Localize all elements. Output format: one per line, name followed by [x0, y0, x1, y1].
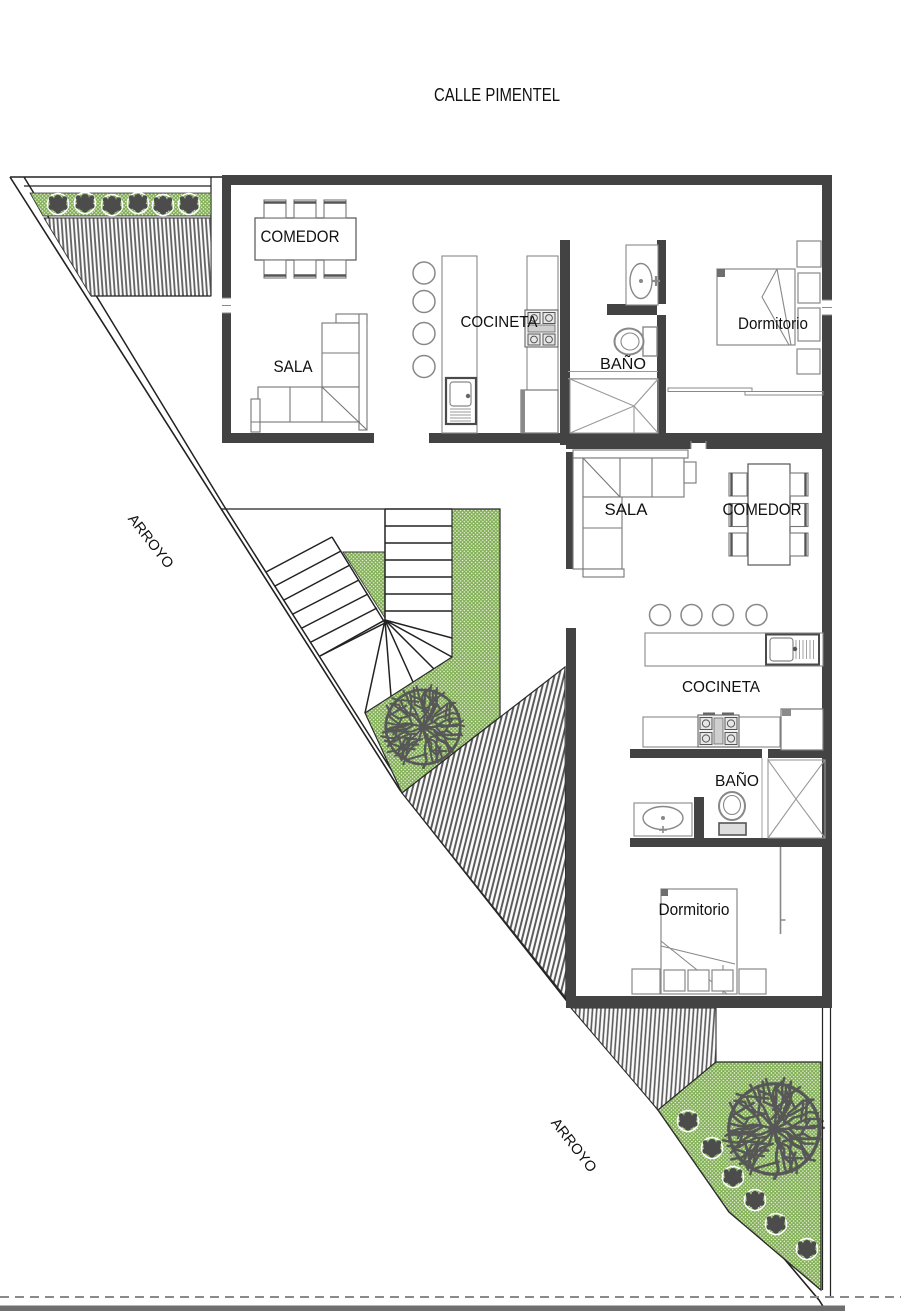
svg-text:CALLE PIMENTEL: CALLE PIMENTEL [434, 85, 560, 105]
svg-text:SALA: SALA [605, 500, 649, 519]
svg-text:COCINETA: COCINETA [682, 679, 760, 696]
svg-text:BAÑO: BAÑO [600, 353, 646, 373]
svg-text:COCINETA: COCINETA [461, 314, 538, 331]
svg-text:SALA: SALA [274, 357, 314, 376]
svg-text:COMEDOR: COMEDOR [723, 500, 802, 519]
svg-text:COMEDOR: COMEDOR [261, 227, 340, 246]
svg-text:BAÑO: BAÑO [715, 770, 759, 790]
svg-text:Dormitorio: Dormitorio [659, 901, 730, 919]
svg-text:Dormitorio: Dormitorio [738, 315, 808, 333]
